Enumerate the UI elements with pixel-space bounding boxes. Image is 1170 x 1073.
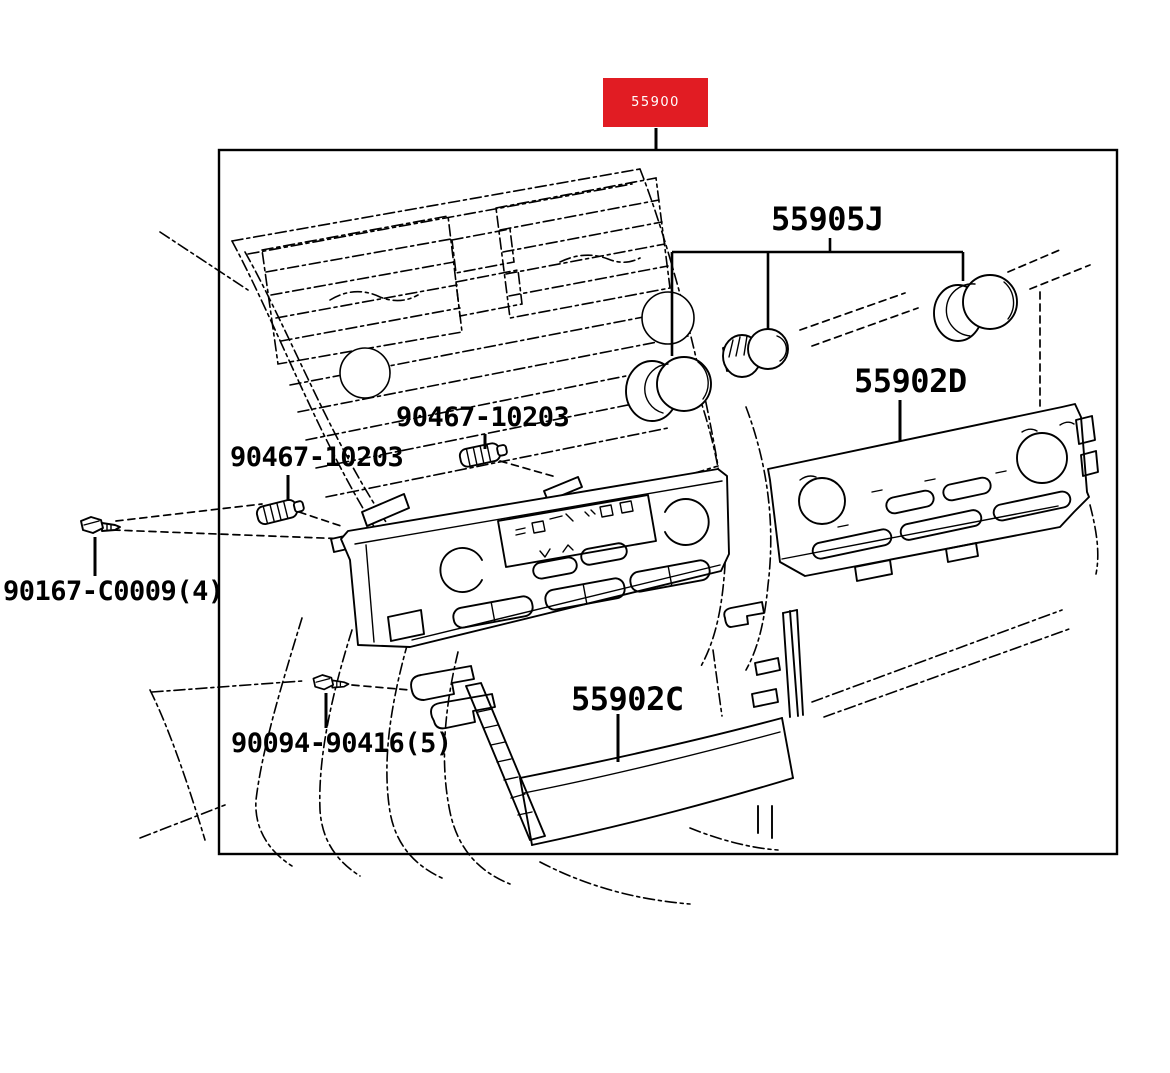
highlighted-part-callout-55900[interactable]: 55900 [603,78,708,127]
retainer-clip-upper [459,441,509,468]
lower-trim-55902c [411,602,803,845]
parts-diagram-55900: 55900 55905J 55902D 55902C 90467-10203 9… [0,0,1170,1073]
knob-right [934,275,1017,341]
label-90094-90416[interactable]: 90094-90416(5) [231,730,452,757]
bezel-knob-hole-left [340,348,390,398]
diagram-line-art [0,0,1170,1073]
screw-90167 [81,517,120,533]
label-55902c[interactable]: 55902C [571,683,684,715]
bezel-knob-hole-right [642,292,694,344]
knob-center [723,329,788,377]
label-90467-10203-upper[interactable]: 90467-10203 [396,404,569,431]
faceplate-55902d [768,404,1098,581]
heater-control-assembly [331,469,729,647]
label-55905j[interactable]: 55905J [771,203,884,235]
label-90167-c0009[interactable]: 90167-C0009(4) [3,578,224,605]
knob-set-bracket [672,238,963,356]
knob-left [626,357,711,421]
label-55902d[interactable]: 55902D [854,365,967,397]
screw-90094 [313,675,348,689]
retainer-clip-lower [255,497,305,526]
callout-part-number: 55900 [631,95,680,110]
label-90467-10203-lower[interactable]: 90467-10203 [230,444,403,471]
